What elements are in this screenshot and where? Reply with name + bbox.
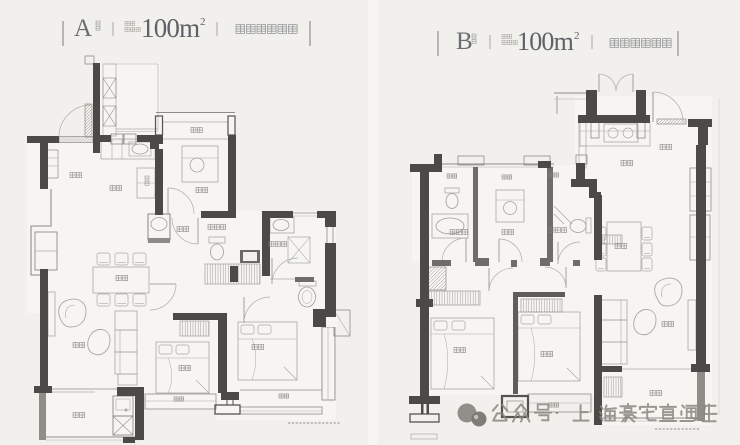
- svg-text:2: 2: [574, 30, 580, 42]
- svg-text:2: 2: [200, 16, 206, 28]
- svg-text:100m: 100m: [517, 27, 574, 56]
- svg-text:100m: 100m: [141, 13, 200, 43]
- svg-text:A: A: [74, 15, 92, 42]
- svg-text:B: B: [456, 28, 473, 55]
